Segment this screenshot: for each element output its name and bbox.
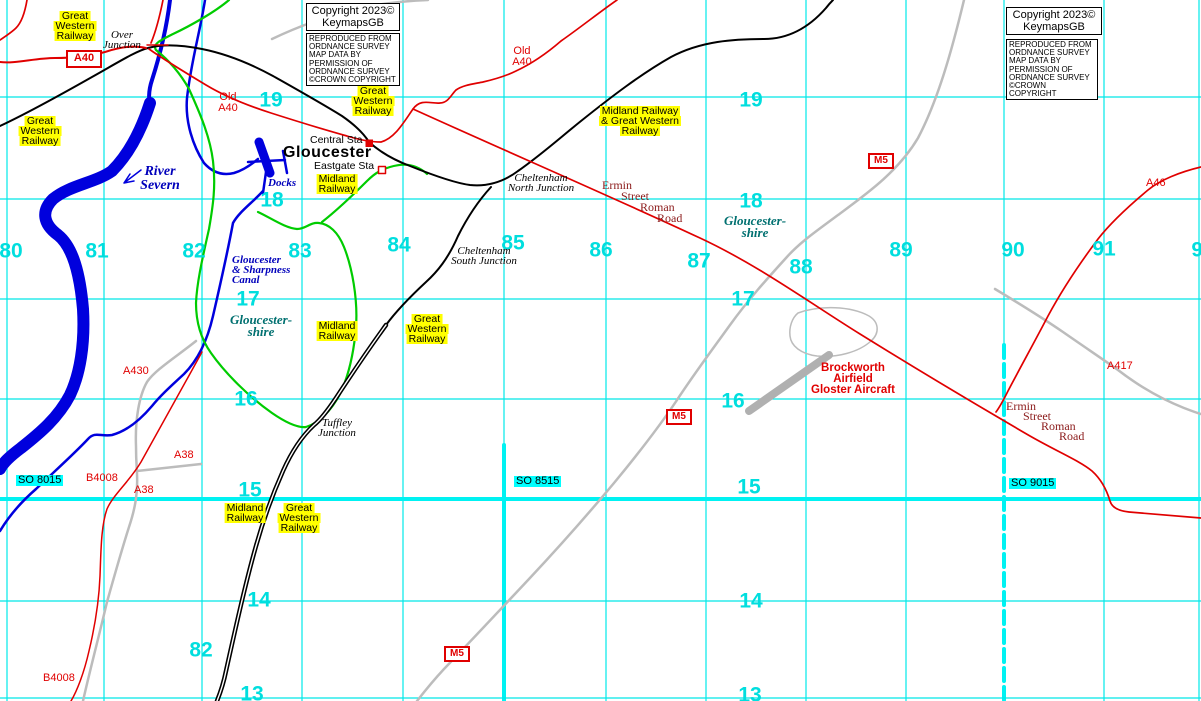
label-gloucestershire-west: Gloucester-shire xyxy=(230,314,292,338)
label-tuffley-junction: TuffleyJunction xyxy=(318,418,356,438)
grid-number: 16 xyxy=(234,389,257,410)
label-cheltenham-north-junction-line: North Junction xyxy=(508,183,574,193)
grid-number: 17 xyxy=(731,289,754,310)
label-brockworth-airfield: BrockworthAirfieldGloster Aircraft xyxy=(811,363,895,396)
label-midland-and-gwr: Midland Railway& Great WesternRailway xyxy=(599,106,681,136)
label-a417: A417 xyxy=(1107,361,1133,372)
grid-number: 86 xyxy=(589,240,612,261)
docks-pier xyxy=(248,160,285,162)
grid-number: 14 xyxy=(739,591,762,612)
copyright-box-right-line: Copyright 2023© xyxy=(1009,9,1099,21)
label-tuffley-junction-line: Junction xyxy=(318,428,356,438)
road-shield-a40-0: A40 xyxy=(66,50,102,68)
label-b4008-upper: B4008 xyxy=(86,473,118,484)
label-gwr-topleft-line: Railway xyxy=(55,31,96,41)
label-cheltenham-north-junction: CheltenhamNorth Junction xyxy=(508,173,574,193)
grid-number: 14 xyxy=(247,590,270,611)
label-b4008-upper-line: B4008 xyxy=(86,473,118,484)
copyright-box-left-line: Copyright 2023© xyxy=(309,5,397,17)
label-old-a40-west-line: A40 xyxy=(218,103,238,114)
label-a38-lower-line: A38 xyxy=(134,485,154,496)
label-gwr-bottom: GreatWesternRailway xyxy=(278,503,321,533)
label-eastgate-station-line: Eastgate Sta xyxy=(314,161,374,172)
label-a38-upper-line: A38 xyxy=(174,450,194,461)
eastgate-station-marker xyxy=(379,167,386,174)
label-river-severn-line: Severn xyxy=(140,179,180,193)
road-shield-m5-1: M5 xyxy=(868,153,894,169)
label-gloucester-city-line: Gloucester xyxy=(283,145,372,161)
copyright-box-left: Copyright 2023©KeymapsGB xyxy=(306,3,400,31)
river-flow-arrow xyxy=(124,170,141,183)
label-docks: Docks xyxy=(268,178,296,188)
road-a417-gray xyxy=(995,289,1201,414)
label-gloucestershire-east: Gloucester-shire xyxy=(724,215,786,239)
grid-number: 90 xyxy=(1001,240,1024,261)
grid-number: 92 xyxy=(1191,240,1201,261)
river-arm xyxy=(187,0,258,174)
label-so9015: SO 9015 xyxy=(1009,478,1056,489)
label-midland-bottom-line: Railway xyxy=(225,513,266,523)
road-a38-spur-gray xyxy=(137,464,201,471)
grid-number: 18 xyxy=(260,190,283,211)
label-a46-line: A46 xyxy=(1146,178,1166,189)
label-gwr-left-line: Railway xyxy=(20,136,61,146)
map: 8081828384858687888990919282191918181717… xyxy=(0,0,1201,701)
road-ermin-street xyxy=(413,109,1201,518)
road-a46 xyxy=(996,167,1201,412)
grid-number: 89 xyxy=(889,240,912,261)
label-gwr-bottom-line: Railway xyxy=(279,523,320,533)
os-credit-box-left: REPRODUCED FROMORDNANCE SURVEYMAP DATA B… xyxy=(306,33,400,86)
grid-number: 88 xyxy=(789,257,812,278)
label-canal: Gloucester& SharpnessCanal xyxy=(232,255,290,285)
label-gwr-topcenter: GreatWesternRailway xyxy=(352,86,395,116)
label-old-a40-east-line: A40 xyxy=(512,57,532,68)
grid-number: 82 xyxy=(189,640,212,661)
river-severn xyxy=(0,103,150,469)
grid-number: 15 xyxy=(737,477,760,498)
grid-number: 13 xyxy=(738,685,761,701)
road-m5-motorway xyxy=(417,0,964,701)
label-a430-line: A430 xyxy=(123,366,149,377)
label-brockworth-airfield-line: Gloster Aircraft xyxy=(811,385,895,396)
label-ermin-1d-line: Road xyxy=(657,213,682,224)
label-over-junction: OverJunction xyxy=(103,30,141,50)
label-old-a40-east: OldA40 xyxy=(512,46,532,68)
label-b4008-lower-line: B4008 xyxy=(43,673,75,684)
label-gwr-center-line: Railway xyxy=(407,334,448,344)
os-credit-box-left-line: ©CROWN COPYRIGHT xyxy=(309,76,397,84)
label-a417-line: A417 xyxy=(1107,361,1133,372)
label-eastgate-station: Eastgate Sta xyxy=(314,161,374,172)
grid-number: 16 xyxy=(721,391,744,412)
road-b4008 xyxy=(71,352,202,701)
grid-number: 80 xyxy=(0,241,23,262)
label-gwr-left: GreatWesternRailway xyxy=(19,116,62,146)
os-credit-box-right-line: ©CROWN COPYRIGHT xyxy=(1009,82,1095,98)
label-midland-bottom: MidlandRailway xyxy=(225,503,266,523)
label-gwr-center: GreatWesternRailway xyxy=(406,314,449,344)
grid-number: 13 xyxy=(240,684,263,701)
grid-number: 15 xyxy=(238,480,261,501)
grid-number: 19 xyxy=(739,90,762,111)
grid-number: 18 xyxy=(739,191,762,212)
label-cheltenham-south-junction-line: South Junction xyxy=(451,256,517,266)
road-shield-m5-2: M5 xyxy=(666,409,692,425)
label-gwr-topleft: GreatWesternRailway xyxy=(54,11,97,41)
copyright-box-right: Copyright 2023©KeymapsGB xyxy=(1006,7,1102,35)
grid-number: 19 xyxy=(259,90,282,111)
label-a430: A430 xyxy=(123,366,149,377)
copyright-box-left-line: KeymapsGB xyxy=(309,17,397,29)
grid-number: 17 xyxy=(236,289,259,310)
grid-number: 84 xyxy=(387,235,410,256)
label-canal-line: Canal xyxy=(232,275,290,285)
airfield-perimeter xyxy=(790,308,877,357)
label-midland-center-line: Railway xyxy=(317,331,358,341)
label-so8015: SO 8015 xyxy=(16,475,63,486)
grid-number: 81 xyxy=(85,241,108,262)
label-midland-center: MidlandRailway xyxy=(317,321,358,341)
road-shield-m5-3: M5 xyxy=(444,646,470,662)
label-so9015-line: SO 9015 xyxy=(1011,478,1054,489)
docks-basin xyxy=(259,142,270,173)
road-a40-northwest-stub xyxy=(0,0,27,40)
label-b4008-lower: B4008 xyxy=(43,673,75,684)
grid-number: 82 xyxy=(182,241,205,262)
label-so8515-line: SO 8515 xyxy=(516,476,559,487)
label-ermin-2d: Road xyxy=(1059,431,1084,442)
label-midland-eastgate-line: Railway xyxy=(317,184,358,194)
label-gwr-topcenter-line: Railway xyxy=(353,106,394,116)
grid-number: 87 xyxy=(687,251,710,272)
label-docks-line: Docks xyxy=(268,178,296,188)
road-old-a40-north-stub xyxy=(151,0,163,43)
label-river-severn-line: River xyxy=(140,165,180,179)
label-gloucestershire-west-line: shire xyxy=(230,326,292,338)
label-ermin-1d: Road xyxy=(657,213,682,224)
label-ermin-2d-line: Road xyxy=(1059,431,1084,442)
os-credit-box-right: REPRODUCED FROMORDNANCE SURVEYMAP DATA B… xyxy=(1006,39,1098,100)
label-gloucestershire-east-line: shire xyxy=(724,227,786,239)
label-over-junction-line: Junction xyxy=(103,40,141,50)
label-river-severn: RiverSevern xyxy=(140,165,180,193)
label-a38-lower: A38 xyxy=(134,485,154,496)
label-so8015-line: SO 8015 xyxy=(18,475,61,486)
label-gloucester-city: Gloucester xyxy=(283,145,372,161)
grid-number: 91 xyxy=(1092,239,1115,260)
copyright-box-right-line: KeymapsGB xyxy=(1009,21,1099,33)
label-midland-eastgate: MidlandRailway xyxy=(317,174,358,194)
label-midland-and-gwr-line: Railway xyxy=(620,126,661,136)
label-cheltenham-south-junction: CheltenhamSouth Junction xyxy=(451,246,517,266)
railway-main-northeast xyxy=(369,0,833,185)
label-a46: A46 xyxy=(1146,178,1166,189)
label-so8515: SO 8515 xyxy=(514,476,561,487)
grid-number: 83 xyxy=(288,241,311,262)
label-old-a40-west: OldA40 xyxy=(218,92,238,114)
label-a38-upper: A38 xyxy=(174,450,194,461)
